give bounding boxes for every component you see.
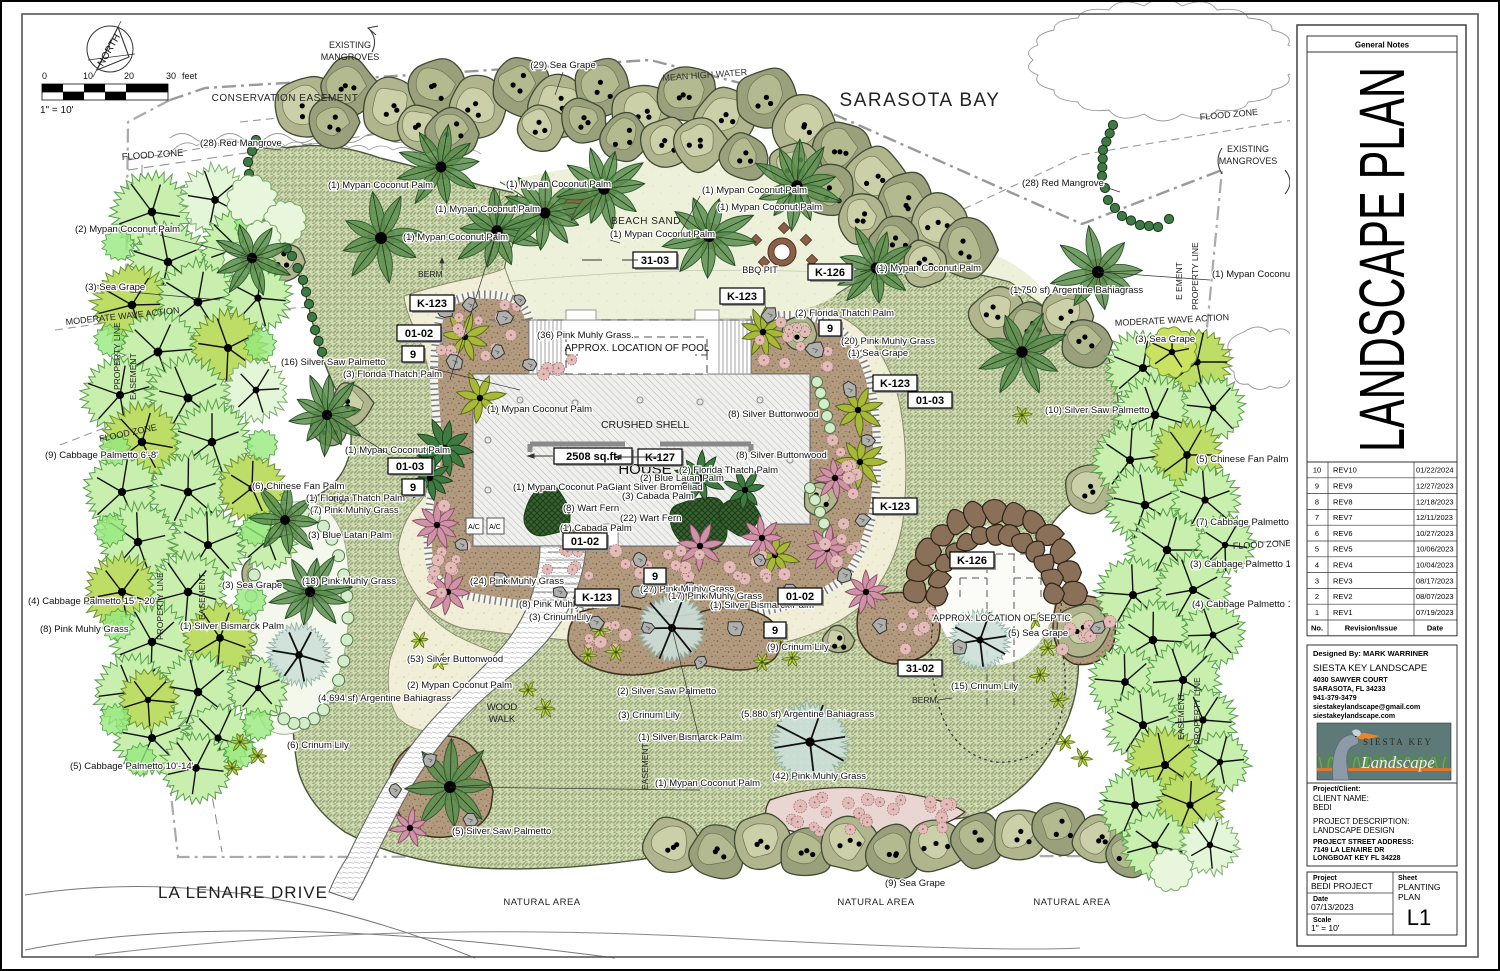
svg-text:K-127: K-127 <box>645 452 675 464</box>
svg-text:(29) Sea Grape: (29) Sea Grape <box>530 60 595 71</box>
svg-text:(28) Red Mangrove: (28) Red Mangrove <box>1022 178 1104 189</box>
svg-text:REV6: REV6 <box>1333 529 1353 538</box>
svg-text:(3) Crinum Lily: (3) Crinum Lily <box>529 612 591 623</box>
svg-text:MANGROVES: MANGROVES <box>321 52 380 62</box>
svg-text:(1) Mypan Coconut Palm: (1) Mypan Coconut Palm <box>610 229 715 240</box>
svg-text:(1) Mypan Coconut Palm: (1) Mypan Coconut Palm <box>876 263 981 274</box>
svg-text:(9) Cabbage Palmetto 6'-8': (9) Cabbage Palmetto 6'-8' <box>45 450 158 461</box>
svg-text:LANDSCAPE PLAN: LANDSCAPE PLAN <box>1346 67 1418 452</box>
svg-text:(18) Pink Muhly Grass: (18) Pink Muhly Grass <box>302 576 396 587</box>
svg-text:REV8: REV8 <box>1333 497 1353 506</box>
svg-text:EXISTING: EXISTING <box>1227 144 1269 154</box>
svg-text:PROJECT DESCRIPTION:: PROJECT DESCRIPTION: <box>1313 817 1409 826</box>
svg-text:E EMENT: E EMENT <box>1174 262 1184 300</box>
svg-text:NATURAL AREA: NATURAL AREA <box>503 897 580 908</box>
svg-text:31-02: 31-02 <box>906 663 934 675</box>
svg-text:(10) Silver Saw Palmetto: (10) Silver Saw Palmetto <box>1045 405 1150 416</box>
svg-text:(3) Cabada Palm: (3) Cabada Palm <box>622 491 694 502</box>
svg-text:10/27/2023: 10/27/2023 <box>1416 529 1454 538</box>
svg-text:WOOD: WOOD <box>487 702 518 713</box>
svg-text:siestakeylandscape@gmail.com: siestakeylandscape@gmail.com <box>1313 704 1420 711</box>
svg-text:(28) Red Mangrove: (28) Red Mangrove <box>200 138 282 149</box>
svg-text:(7) Pink Muhly Grass: (7) Pink Muhly Grass <box>310 505 399 516</box>
svg-text:WALK: WALK <box>489 714 516 725</box>
svg-text:LANDSCAPE DESIGN: LANDSCAPE DESIGN <box>1313 826 1395 835</box>
svg-text:REV10: REV10 <box>1333 466 1357 475</box>
svg-text:1: 1 <box>1315 608 1319 617</box>
svg-text:SIESTA KEY LANDSCAPE: SIESTA KEY LANDSCAPE <box>1313 663 1427 674</box>
svg-text:(1) Mypan Coconut Palm: (1) Mypan Coconut Palm <box>702 185 807 196</box>
svg-text:(1) Mypan Coconut Palm: (1) Mypan Coconut Palm <box>487 404 592 415</box>
svg-text:EXISTING: EXISTING <box>329 40 371 50</box>
svg-text:CLIENT NAME:: CLIENT NAME: <box>1313 794 1369 803</box>
svg-text:K-123: K-123 <box>727 291 757 303</box>
svg-text:REV3: REV3 <box>1333 576 1353 585</box>
svg-text:(8) Pink Muhly Grass: (8) Pink Muhly Grass <box>40 624 129 635</box>
svg-text:10: 10 <box>83 71 93 81</box>
svg-text:(20) Pink Muhly Grass: (20) Pink Muhly Grass <box>841 336 935 347</box>
svg-text:PROPERTY LINE: PROPERTY LINE <box>1190 242 1200 310</box>
svg-text:(5) Chinese Fan Palm: (5) Chinese Fan Palm <box>1196 454 1288 465</box>
svg-text:(1) Silver Bismarck Palm: (1) Silver Bismarck Palm <box>638 732 742 743</box>
svg-text:(3) Sea Grape: (3) Sea Grape <box>1135 334 1195 345</box>
svg-text:siestakeylandscape.com: siestakeylandscape.com <box>1313 713 1395 720</box>
svg-text:9: 9 <box>410 482 416 494</box>
svg-text:(1) Sea Grape: (1) Sea Grape <box>848 348 908 359</box>
svg-text:PROPERTY LINE: PROPERTY LINE <box>1192 677 1202 745</box>
svg-text:(16) Silver Saw Palmetto: (16) Silver Saw Palmetto <box>281 357 386 368</box>
svg-text:1" = 10': 1" = 10' <box>40 105 74 116</box>
svg-text:07/13/2023: 07/13/2023 <box>1311 902 1354 912</box>
svg-text:Date: Date <box>1427 624 1443 633</box>
svg-text:12/18/2023: 12/18/2023 <box>1416 497 1454 506</box>
svg-text:31-03: 31-03 <box>641 255 669 267</box>
svg-text:K-126: K-126 <box>957 555 987 567</box>
svg-text:Project/Client:: Project/Client: <box>1313 786 1360 793</box>
svg-text:01-03: 01-03 <box>916 395 944 407</box>
svg-text:PLANTING: PLANTING <box>1398 882 1441 892</box>
svg-text:(1) Mypan Coconut Palm): (1) Mypan Coconut Palm) <box>513 482 621 493</box>
svg-text:K-123: K-123 <box>417 298 447 310</box>
svg-text:NATURAL AREA: NATURAL AREA <box>1033 897 1110 908</box>
svg-text:REV1: REV1 <box>1333 608 1353 617</box>
svg-text:(3) Crinum Lily: (3) Crinum Lily <box>618 710 680 721</box>
svg-text:PLAN: PLAN <box>1398 892 1420 902</box>
svg-text:REV2: REV2 <box>1333 592 1353 601</box>
svg-text:BEDI: BEDI <box>1313 803 1332 812</box>
svg-text:MANGROVES: MANGROVES <box>1219 156 1278 166</box>
svg-text:(2) Mypan Coconut Palm: (2) Mypan Coconut Palm <box>75 224 180 235</box>
svg-text:CRUSHED SHELL: CRUSHED SHELL <box>601 419 689 431</box>
svg-text:08/17/2023: 08/17/2023 <box>1416 576 1454 585</box>
svg-text:20: 20 <box>124 71 134 81</box>
svg-text:(6) Chinese Fan Palm: (6) Chinese Fan Palm <box>252 481 344 492</box>
svg-text:(3) Sea Grape: (3) Sea Grape <box>85 282 145 293</box>
svg-text:01-03: 01-03 <box>396 461 424 473</box>
svg-text:(9) Crinum Lily: (9) Crinum Lily <box>767 642 829 653</box>
svg-text:(1) Mypan Coconut Palm: (1) Mypan Coconut Palm <box>328 180 433 191</box>
svg-text:EASEMENT: EASEMENT <box>1176 693 1186 740</box>
svg-text:(3) Blue Latan Palm: (3) Blue Latan Palm <box>308 530 392 541</box>
svg-text:5: 5 <box>1315 545 1319 554</box>
svg-text:APPROX. LOCATION OF SEPTIC: APPROX. LOCATION OF SEPTIC <box>933 613 1071 623</box>
svg-text:(53) Silver Buttonwood: (53) Silver Buttonwood <box>407 654 503 665</box>
svg-text:01-02: 01-02 <box>405 328 433 340</box>
svg-text:(4) Cabbage Palmetto 15' - 20': (4) Cabbage Palmetto 15' - 20' <box>28 596 157 607</box>
svg-text:(2) Florida Thatch Palm: (2) Florida Thatch Palm <box>795 308 894 319</box>
svg-text:01-02: 01-02 <box>786 591 814 603</box>
svg-text:2508 sq.ft.: 2508 sq.ft. <box>566 451 620 463</box>
svg-text:BERM: BERM <box>912 695 937 705</box>
svg-text:A/C: A/C <box>489 524 501 531</box>
svg-text:12/27/2023: 12/27/2023 <box>1416 482 1454 491</box>
svg-text:SARASOTA, FL 34233: SARASOTA, FL 34233 <box>1313 686 1386 693</box>
svg-text:9: 9 <box>772 625 778 637</box>
svg-text:L1: L1 <box>1407 905 1431 930</box>
svg-text:A/C: A/C <box>468 524 480 531</box>
svg-text:EASEMENT: EASEMENT <box>640 743 650 790</box>
svg-text:(1) Silver Bismarck Palm: (1) Silver Bismarck Palm <box>180 621 284 632</box>
svg-text:(1) Mypan Coconut Palm: (1) Mypan Coconut Palm <box>345 445 450 456</box>
svg-text:(42) Pink Muhly Grass: (42) Pink Muhly Grass <box>772 771 866 782</box>
svg-text:9: 9 <box>410 349 416 361</box>
svg-text:feet: feet <box>182 71 198 81</box>
svg-text:2: 2 <box>1315 592 1319 601</box>
svg-text:(24) Pink Muhly Grass: (24) Pink Muhly Grass <box>470 576 564 587</box>
svg-text:0: 0 <box>42 71 47 81</box>
svg-text:(1,750 sf) Argentine Bahiagras: (1,750 sf) Argentine Bahiagrass <box>1010 285 1143 296</box>
svg-text:9: 9 <box>652 571 658 583</box>
svg-text:SIESTA KEY: SIESTA KEY <box>1363 737 1433 747</box>
svg-text:3: 3 <box>1315 576 1319 585</box>
svg-text:BEDI PROJECT: BEDI PROJECT <box>1311 881 1373 891</box>
svg-text:APPROX. LOCATION OF POOL: APPROX. LOCATION OF POOL <box>565 343 710 354</box>
svg-text:REV5: REV5 <box>1333 545 1353 554</box>
svg-text:30: 30 <box>166 71 176 81</box>
svg-text:(3) Sea Grape: (3) Sea Grape <box>222 580 282 591</box>
svg-text:(5) Cabbage Palmetto 10'-14': (5) Cabbage Palmetto 10'-14' <box>70 761 194 772</box>
svg-text:No.: No. <box>1311 624 1323 633</box>
svg-text:9: 9 <box>1315 482 1319 491</box>
svg-text:K-123: K-123 <box>582 592 612 604</box>
svg-text:941-379-3479: 941-379-3479 <box>1313 695 1357 702</box>
svg-text:REV9: REV9 <box>1333 482 1353 491</box>
svg-text:BBQ PIT: BBQ PIT <box>742 265 778 275</box>
svg-text:(15) Crinum Lily: (15) Crinum Lily <box>951 681 1018 692</box>
svg-text:(1) Mypan Coconut Palm: (1) Mypan Coconut Palm <box>717 202 822 213</box>
svg-text:Sheet: Sheet <box>1398 875 1418 882</box>
svg-text:LONGBOAT KEY FL 34228: LONGBOAT KEY FL 34228 <box>1313 855 1401 862</box>
svg-text:4030 SAWYER COURT: 4030 SAWYER COURT <box>1313 677 1388 684</box>
svg-text:(1) Cabada Palm: (1) Cabada Palm <box>560 523 632 534</box>
svg-text:REV4: REV4 <box>1333 561 1353 570</box>
svg-text:(8) Wart Fern: (8) Wart Fern <box>563 503 619 514</box>
svg-text:K-123: K-123 <box>880 501 910 513</box>
svg-text:6: 6 <box>1315 529 1319 538</box>
svg-text:K-126: K-126 <box>815 267 845 279</box>
svg-text:7149 LA LENAIRE DR: 7149 LA LENAIRE DR <box>1313 847 1384 854</box>
svg-text:01/22/2024: 01/22/2024 <box>1416 466 1454 475</box>
svg-text:(8) Silver Buttonwood: (8) Silver Buttonwood <box>728 409 819 420</box>
svg-text:Revision/Issue: Revision/Issue <box>1345 624 1398 633</box>
svg-text:BEACH SAND: BEACH SAND <box>611 216 681 227</box>
svg-text:08/07/2023: 08/07/2023 <box>1416 592 1454 601</box>
svg-text:LA LENAIRE DRIVE: LA LENAIRE DRIVE <box>158 883 328 902</box>
svg-text:BERM: BERM <box>418 269 443 279</box>
svg-text:NATURAL AREA: NATURAL AREA <box>837 897 914 908</box>
svg-text:K-123: K-123 <box>880 378 910 390</box>
svg-text:(5) Sea Grape: (5) Sea Grape <box>1008 628 1068 639</box>
svg-text:10: 10 <box>1313 466 1321 475</box>
svg-text:Landscape: Landscape <box>1360 753 1435 772</box>
svg-text:(1) Mypan Coconut Palm: (1) Mypan Coconut Palm <box>655 778 760 789</box>
svg-text:EASEMENT: EASEMENT <box>197 573 207 620</box>
svg-text:CONSERVATION EASEMENT: CONSERVATION EASEMENT <box>212 93 359 104</box>
svg-text:(36) Pink Muhly Grass.: (36) Pink Muhly Grass. <box>537 330 634 341</box>
svg-text:(5,880 sf) Argentine Bahiagras: (5,880 sf) Argentine Bahiagrass <box>741 709 874 720</box>
svg-text:Designed By: MARK WARRINER: Designed By: MARK WARRINER <box>1313 649 1429 658</box>
svg-text:General Notes: General Notes <box>1355 41 1410 50</box>
svg-text:9: 9 <box>827 323 833 335</box>
svg-text:7: 7 <box>1315 513 1319 522</box>
svg-text:SARASOTA BAY: SARASOTA BAY <box>840 90 1001 111</box>
svg-text:(1) Mypan Coconut Palm: (1) Mypan Coconut Palm <box>506 179 611 190</box>
svg-text:PROPERTY LINE: PROPERTY LINE <box>112 322 122 390</box>
svg-text:(1) Mypan Coconut Palm: (1) Mypan Coconut Palm <box>403 232 508 243</box>
svg-text:8: 8 <box>1315 497 1319 506</box>
svg-text:07/19/2023: 07/19/2023 <box>1416 608 1454 617</box>
svg-text:(2) Silver Saw Palmetto: (2) Silver Saw Palmetto <box>617 686 716 697</box>
svg-text:(3) Florida Thatch Palm: (3) Florida Thatch Palm <box>343 369 442 380</box>
svg-text:(5) Silver Saw Palmetto: (5) Silver Saw Palmetto <box>452 826 551 837</box>
svg-text:(1) Mypan Coconut Palm: (1) Mypan Coconut Palm <box>435 204 540 215</box>
svg-text:(8) Silver Buttonwood: (8) Silver Buttonwood <box>736 450 827 461</box>
svg-text:12/11/2023: 12/11/2023 <box>1416 513 1453 522</box>
svg-text:(4,694 sf) Argentine Bahiagras: (4,694 sf) Argentine Bahiagrass <box>318 693 451 704</box>
svg-text:REV7: REV7 <box>1333 513 1353 522</box>
svg-text:(9) Sea Grape: (9) Sea Grape <box>885 878 945 889</box>
svg-text:(1) Florida Thatch Palm: (1) Florida Thatch Palm <box>306 493 405 504</box>
svg-text:10/06/2023: 10/06/2023 <box>1416 545 1454 554</box>
svg-text:EASEMENT: EASEMENT <box>128 353 138 400</box>
svg-text:(2) Mypan Coconut Palm: (2) Mypan Coconut Palm <box>407 680 512 691</box>
svg-text:(2) Florida Thatch Palm: (2) Florida Thatch Palm <box>679 465 778 476</box>
svg-text:01-02: 01-02 <box>571 536 599 548</box>
svg-text:10/04/2023: 10/04/2023 <box>1416 561 1454 570</box>
svg-text:4: 4 <box>1315 561 1319 570</box>
svg-text:PROJECT STREET ADDRESS:: PROJECT STREET ADDRESS: <box>1313 839 1414 846</box>
svg-text:1" = 10': 1" = 10' <box>1311 923 1340 933</box>
svg-text:(6) Crinum Lily: (6) Crinum Lily <box>287 740 349 751</box>
